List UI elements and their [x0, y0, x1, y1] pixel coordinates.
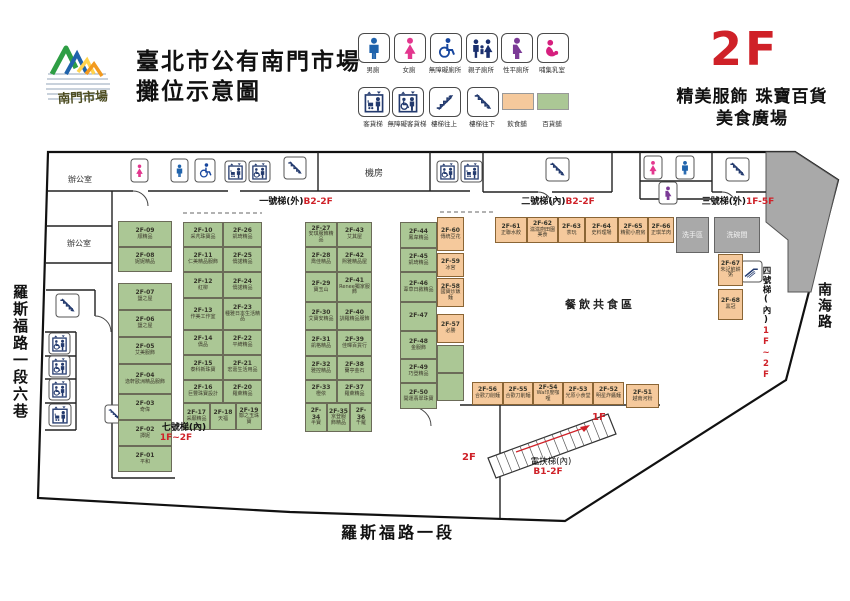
- dining-swatch: [502, 93, 534, 110]
- stall-2F-08: 2F-08妮妮精品: [118, 247, 172, 272]
- stall-2F-59: 2F-59冰宮: [437, 253, 464, 277]
- female-toilet-icon: [131, 159, 148, 182]
- logo: 南門市場: [46, 48, 110, 106]
- all-gender-toilet: [501, 33, 533, 63]
- stall-2F-55: 2F-55合歡刀削麵: [503, 382, 533, 405]
- stair-label-4: 四號梯(內)1F~2F: [760, 266, 772, 381]
- male-toilet-icon: [676, 156, 694, 179]
- floor-map-page: 南門市場 臺北市公有南門市場 攤位示意圖 2F 精美服飾 珠寶百貨 美食廣場 男…: [0, 0, 850, 601]
- stair-label-2: 二號梯(內)B2-2F: [521, 194, 595, 207]
- stall-2F-18: 2F-18天福: [210, 403, 236, 430]
- stall-2F-42: 2F-42熙雅精品屋: [337, 247, 372, 272]
- family-toilet: [466, 33, 498, 63]
- stall-2F-39: 2F-39佳暉百貨行: [337, 330, 372, 356]
- stall-2F-35: 2F-35京登服飾精品: [327, 403, 350, 432]
- stall-2F-56: 2F-56合歡刀削麵: [472, 382, 503, 405]
- stall-2F-52: 2F-52明星炸醬麵: [593, 382, 624, 405]
- all-gender-toilet-icon: [659, 182, 677, 204]
- floor-number: 2F: [710, 22, 779, 76]
- escalator-end-1f: 1F: [592, 412, 606, 423]
- female-toilet-icon: [644, 156, 662, 179]
- stall-2F-26: 2F-26凱琦精品: [223, 222, 262, 247]
- stall-unlabeled: [437, 345, 464, 373]
- stall-2F-40: 2F-40訓羅精品服飾: [337, 302, 372, 330]
- stall-2F-46: 2F-46葦草日敘精品: [400, 272, 437, 302]
- freight-elevator-icon: [49, 404, 71, 426]
- legend-label: 男廁: [367, 64, 380, 74]
- stair-label-3: 三號梯(外)1F-5F: [702, 194, 775, 207]
- legend-item-dining-swatch: 飲食舖: [502, 87, 532, 110]
- stair-label-7: 七號梯(內): [162, 420, 206, 433]
- nursing-room: [537, 33, 569, 63]
- stall-2F-25: 2F-25僑諾精品: [223, 247, 262, 272]
- freight-elevator: [358, 87, 390, 117]
- legend-label: 無障礙客貨梯: [388, 118, 427, 128]
- stall-2F-27: 2F-27安琪服飾精品: [305, 222, 337, 247]
- legend-label: 樓梯往下: [469, 118, 495, 128]
- stall-2F-54: 2F-54Wa印度咖哩: [533, 382, 563, 405]
- stall-2F-05: 2F-05艾美服飾: [118, 337, 172, 364]
- legend-item-accessible-toilet: 無障礙廁所: [430, 33, 460, 63]
- stall-2F-33: 2F-33橙依: [305, 380, 337, 403]
- stall-2F-64: 2F-64史料理場: [585, 217, 618, 243]
- page-title-line1: 臺北市公有南門市場: [136, 42, 361, 76]
- legend-item-stairs-up: 樓梯往上: [429, 87, 459, 117]
- escalator-icon: [741, 261, 762, 282]
- legend-item-freight-elevator: 客貨梯: [358, 87, 388, 117]
- stall-2F-13: 2F-13作美工作室: [183, 298, 223, 330]
- accessible-elevator-icon: [249, 161, 270, 182]
- stall-unlabeled: [437, 373, 464, 401]
- stall-2F-04: 2F-04逸軒歐洲精品服飾: [118, 364, 172, 394]
- female-toilet: [394, 33, 426, 63]
- freight-elevator-icon: [461, 161, 482, 182]
- stall-2F-62: 2F-62滋滋廚田園美食: [527, 217, 558, 243]
- stall-2F-61: 2F-61正聯水餃: [495, 217, 527, 243]
- stall-2F-44: 2F-44鳳韋精品: [400, 222, 437, 248]
- legend-label: 性平廁所: [503, 64, 529, 74]
- escalator-range: B1-2F: [533, 467, 562, 477]
- stall-2F-16: 2F-16巨豐珠寶設計: [183, 380, 223, 403]
- road-label-left: 羅斯福路一段六巷: [10, 284, 31, 420]
- stall-2F-41: 2F-41Renee獨家服飾: [337, 272, 372, 302]
- stairs-up: [429, 87, 461, 117]
- legend-item-family-toilet: 親子廁所: [466, 33, 496, 63]
- male-toilet-icon: [171, 159, 188, 182]
- legend-item-all-gender-toilet: 性平廁所: [501, 33, 531, 63]
- legend-item-male-toilet: 男廁: [358, 33, 388, 63]
- legend-item-retail-swatch: 百貨舖: [537, 87, 567, 110]
- male-toilet: [358, 33, 390, 63]
- stall-2F-19: 2F-19鄒之玉珠寶: [236, 403, 262, 430]
- stairs-down-icon: [284, 157, 306, 179]
- road-label-right: 南海路: [814, 282, 834, 330]
- stall-2F-53: 2F-53光原小食堂: [563, 382, 593, 405]
- stall-2F-14: 2F-14僑品: [183, 330, 223, 355]
- stairs-down-icon: [56, 294, 79, 317]
- office-label-1: 辦公室: [68, 174, 92, 185]
- stall-2F-07: 2F-07鹽之屋: [118, 283, 172, 310]
- stall-2F-34: 2F-34半寶: [305, 403, 327, 432]
- legend-label: 客貨梯: [363, 118, 383, 128]
- stall-2F-36: 2F-36千羅: [350, 403, 372, 432]
- stall-2F-43: 2F-43艾其屋: [337, 222, 372, 247]
- stall-2F-32: 2F-32雅控精品: [305, 356, 337, 380]
- stall-2F-67: 2F-67朱記餡餅粥: [718, 254, 743, 286]
- stall-2F-15: 2F-15泰科新珠寶: [183, 355, 223, 380]
- accessible-elevator: [392, 87, 424, 117]
- escalator-end-2f: 2F: [462, 452, 476, 463]
- accessible-elevator-icon: [437, 161, 458, 182]
- stall-2F-28: 2F-28喬佳精品: [305, 247, 337, 272]
- legend-label: 飲食舖: [507, 118, 527, 128]
- stall-2F-09: 2F-09順精品: [118, 221, 172, 247]
- stairs-down-icon: [726, 158, 749, 181]
- stall-2F-65: 2F-65精勤小廚房: [618, 217, 648, 243]
- accessible-elevator-icon: [49, 356, 70, 377]
- stall-2F-11: 2F-11仁美精品服飾: [183, 247, 223, 272]
- accessible-toilet-icon: [195, 159, 215, 182]
- legend-item-nursing-room: 哺集乳室: [537, 33, 567, 63]
- stall-2F-31: 2F-31凱格精品: [305, 330, 337, 356]
- accessible-toilet: [430, 33, 462, 63]
- stair-label-1: 一號梯(外)B2-2F: [259, 194, 333, 207]
- stall-2F-23: 2F-23種雅日本生活精品: [223, 298, 262, 330]
- stall-2F-66: 2F-66正琪羊肉: [648, 217, 674, 243]
- stall-2F-12: 2F-12紅柳: [183, 272, 223, 298]
- office-label-2: 辦公室: [67, 238, 91, 249]
- freight-elevator-icon: [225, 161, 246, 182]
- legend-label: 無障礙廁所: [429, 64, 462, 74]
- logo-text: 南門市場: [57, 88, 108, 106]
- stall-2F-20: 2F-20羅萊精品: [223, 380, 262, 403]
- stall-2F-29: 2F-29寶玉山: [305, 272, 337, 302]
- stall-2F-24: 2F-24僑諾精品: [223, 272, 262, 298]
- stall-2F-45: 2F-45凱琦精品: [400, 248, 437, 272]
- stall-2F-21: 2F-21宏嘉生活用品: [223, 355, 262, 380]
- machine-room-label: 機房: [365, 166, 383, 179]
- retail-swatch: [537, 93, 569, 110]
- stall-2F-47: 2F-47: [400, 302, 437, 331]
- dining-area-label: 餐飲共食區: [565, 296, 635, 312]
- floor-desc-line2: 美食廣場: [716, 104, 788, 129]
- stall-2F-37: 2F-37羅萊精品: [337, 380, 372, 403]
- accessible-elevator-icon: [49, 379, 70, 400]
- legend-label: 親子廁所: [468, 64, 494, 74]
- wash-area: 洗手區: [676, 217, 709, 253]
- road-label-bottom: 羅斯福路一段: [341, 519, 455, 543]
- escalator-label: 電扶梯(內): [531, 455, 572, 467]
- stall-2F-58: 2F-58國寶炒飯麵: [437, 278, 464, 307]
- stall-2F-60: 2F-60傳統豆花: [437, 217, 464, 251]
- stall-2F-51: 2F-51越南河粉: [626, 384, 659, 408]
- stall-2F-06: 2F-06鹽之屋: [118, 310, 172, 337]
- stall-2F-10: 2F-10采芃珠寶品: [183, 222, 223, 247]
- stall-2F-50: 2F-50開運翡翠珠寶: [400, 383, 437, 409]
- stall-2F-03: 2F-03奇偉: [118, 394, 172, 420]
- page-title-line2: 攤位示意圖: [136, 72, 261, 106]
- stair-label-7-range: 1F~2F: [160, 433, 192, 443]
- stall-2F-48: 2F-48金服飾: [400, 331, 437, 359]
- legend-item-accessible-elevator: 無障礙客貨梯: [392, 87, 422, 117]
- legend-label: 樓梯往上: [431, 118, 457, 128]
- legend-label: 女廁: [403, 64, 416, 74]
- legend-label: 哺集乳室: [539, 64, 565, 74]
- stall-2F-63: 2F-63茶玩: [558, 217, 585, 243]
- accessible-elevator-icon: [49, 333, 70, 354]
- legend-item-stairs-down: 樓梯往下: [467, 87, 497, 117]
- stall-2F-30: 2F-30艾寶安精品: [305, 302, 337, 330]
- legend-item-female-toilet: 女廁: [394, 33, 424, 63]
- stall-2F-01: 2F-01平和: [118, 446, 172, 472]
- legend-label: 百貨舖: [542, 118, 562, 128]
- dishwash-room: 洗碗間: [714, 217, 760, 253]
- stall-2F-57: 2F-57必勝: [437, 314, 464, 343]
- stall-2F-38: 2F-38蘭亭金石: [337, 356, 372, 380]
- stairs-down: [467, 87, 499, 117]
- stall-2F-22: 2F-22平綺精品: [223, 330, 262, 355]
- stairs-down-icon: [546, 158, 569, 181]
- stall-2F-68: 2F-68黑冠: [718, 289, 743, 320]
- stall-2F-49: 2F-49巧登精品: [400, 359, 437, 383]
